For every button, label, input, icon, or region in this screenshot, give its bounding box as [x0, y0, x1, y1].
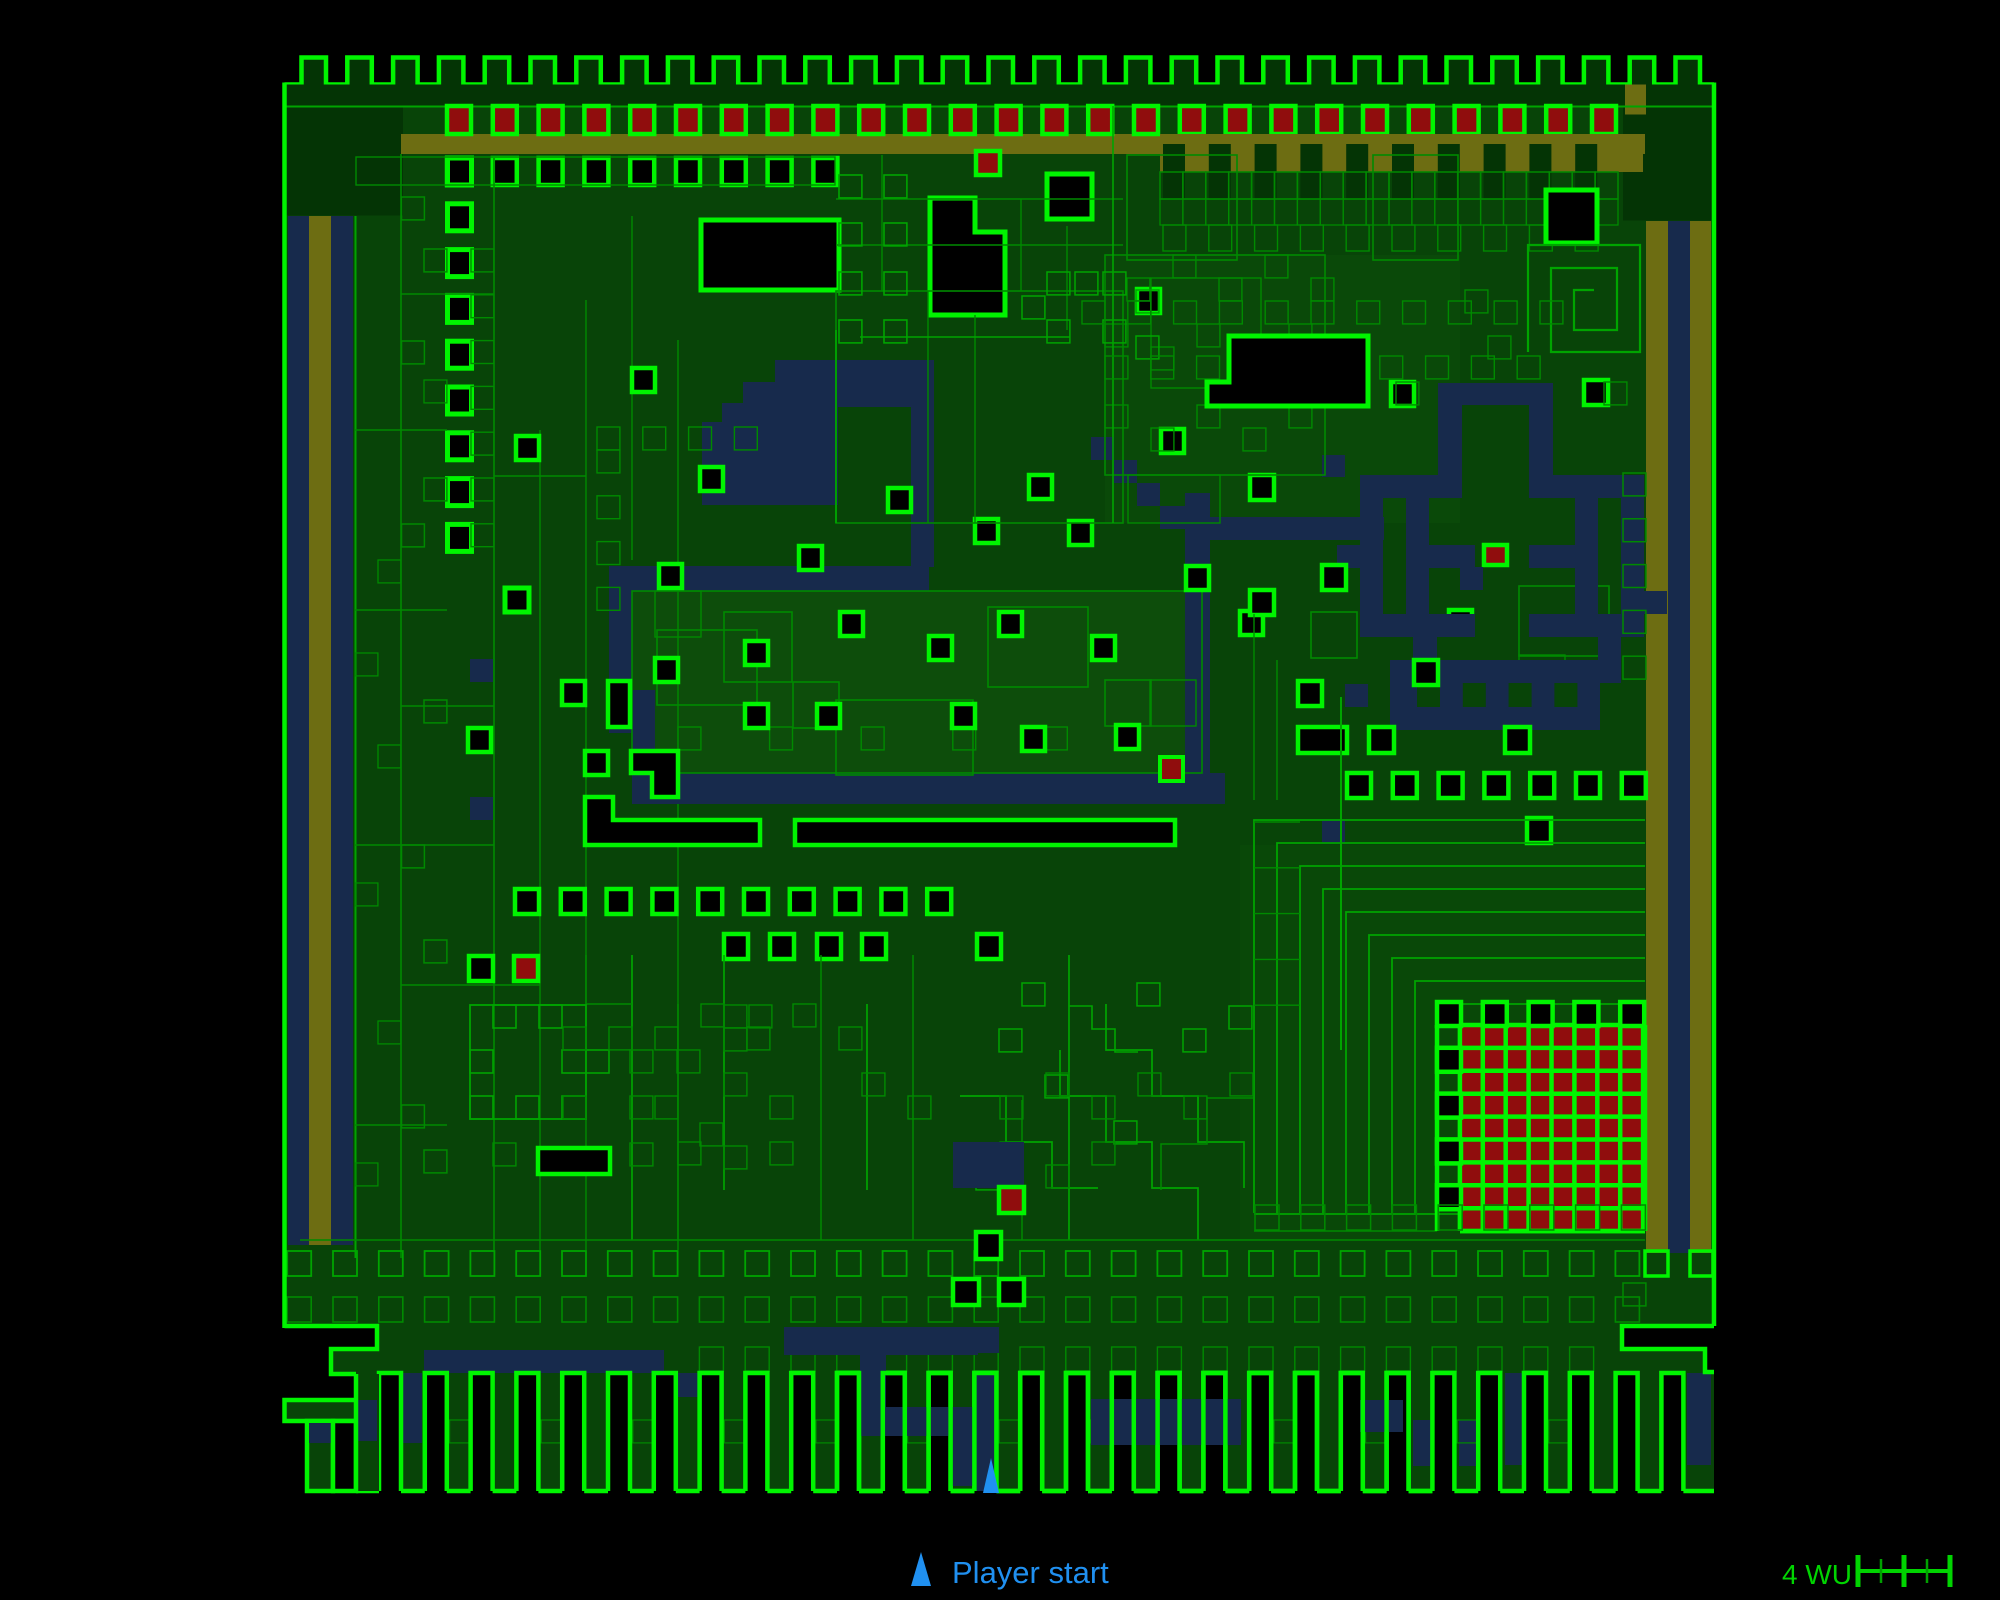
- svg-text:Player start: Player start: [952, 1555, 1109, 1590]
- svg-text:4 WU: 4 WU: [1782, 1559, 1852, 1590]
